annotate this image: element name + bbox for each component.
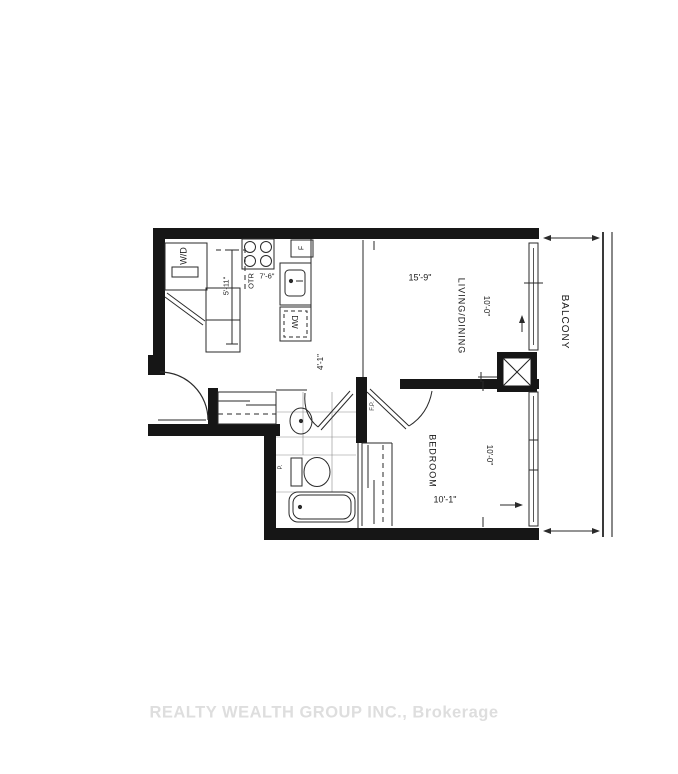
balcony-dimension-lines: [543, 235, 600, 534]
washer-dryer-unit: [172, 267, 198, 277]
toilet: [291, 458, 330, 487]
foyer-closet: [218, 392, 276, 424]
hall-width-dim: 4'-1": [317, 354, 325, 370]
floorplan-drawing: [0, 0, 678, 774]
column: [497, 352, 537, 392]
bedroom-label: BEDROOM: [428, 434, 437, 488]
hall-lines: [363, 240, 497, 382]
bedroom-door: [367, 389, 432, 429]
laundry-door: [165, 297, 203, 325]
living-depth-dim: 10'-0": [482, 296, 490, 316]
stove: [242, 239, 274, 269]
bedroom-door-swing: [409, 391, 432, 426]
wall-hall-bedroom: [356, 377, 367, 443]
wall-foyer-bottom: [148, 424, 280, 436]
washer-dryer-label: W/D: [180, 247, 189, 265]
bathtub: [289, 492, 355, 522]
living-width-dim: 15'-9": [409, 274, 432, 283]
balcony-railing: [603, 232, 612, 537]
bedroom-depth-dim: 10'-0": [485, 445, 493, 465]
wall-top: [153, 228, 539, 239]
plumbing-note-label: P.: [278, 465, 284, 470]
wall-bottom: [264, 528, 539, 540]
laundry-door: [167, 293, 205, 321]
living-dining-label: LIVING/DINING: [457, 278, 466, 355]
tile-grid: [276, 392, 356, 492]
bathroom: [276, 390, 358, 528]
floorplan: W/D OTR 7'-6" 5'-11" F DW 15'-9" LIVING/…: [0, 0, 678, 774]
entry-door: [148, 355, 208, 420]
kitchen-run-dim: 7'-6": [260, 272, 275, 280]
fridge-label: F: [299, 246, 306, 250]
bedroom: [362, 381, 483, 527]
kitchen-dim-line: [226, 250, 238, 344]
kitchen-sink: [280, 263, 311, 305]
door-note-label: F.P.: [370, 401, 376, 411]
window-arrowhead: [515, 502, 523, 508]
living-balcony-door: [519, 243, 543, 350]
entry-door-swing: [160, 372, 208, 420]
wall-left: [153, 228, 165, 375]
otr-label: OTR: [247, 273, 255, 289]
bedroom-closet: [362, 443, 392, 526]
kitchen-aisle-dim: 5'-11": [222, 277, 230, 296]
balcony-label: BALCONY: [559, 295, 569, 350]
brokerage-watermark: REALTY WEALTH GROUP INC., Brokerage: [149, 704, 498, 723]
bedroom-window: [500, 392, 538, 526]
wall-closet-stub: [208, 388, 218, 424]
bedroom-width-dim: 10'-1": [434, 496, 457, 505]
kitchen-cabinets: [206, 288, 240, 352]
wall-bath-left: [264, 424, 276, 540]
slider-arrowhead: [519, 315, 525, 323]
dishwasher-label: DW: [290, 315, 298, 328]
